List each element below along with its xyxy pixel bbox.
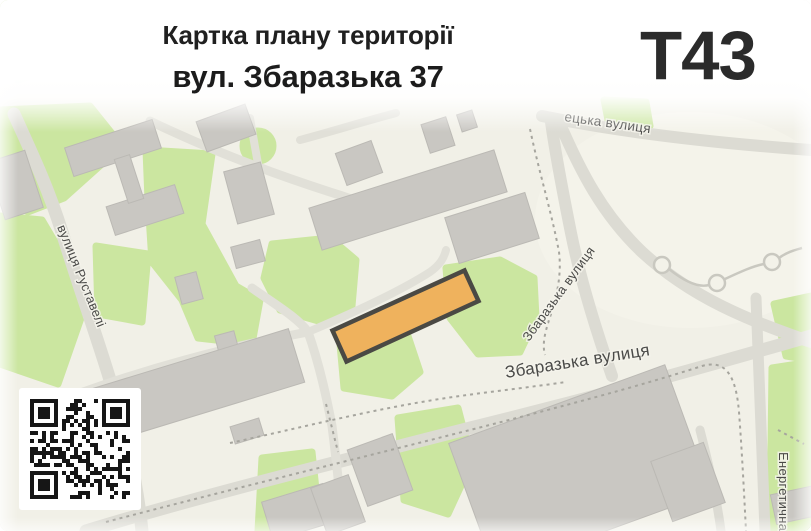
- qr-code-pattern: [30, 399, 130, 499]
- page-title: Картка плану території: [126, 20, 490, 51]
- qr-code: [19, 388, 141, 510]
- card-header: Картка плану території вул. Збаразька 37…: [0, 0, 811, 132]
- territory-plan-card: вулиця Руставелі ецька вулиця Збаразька …: [0, 0, 811, 531]
- address-subtitle: вул. Збаразька 37: [126, 59, 490, 95]
- plan-code: Т43: [640, 24, 756, 88]
- street-label-enerhetychna: Енергетична: [776, 452, 791, 531]
